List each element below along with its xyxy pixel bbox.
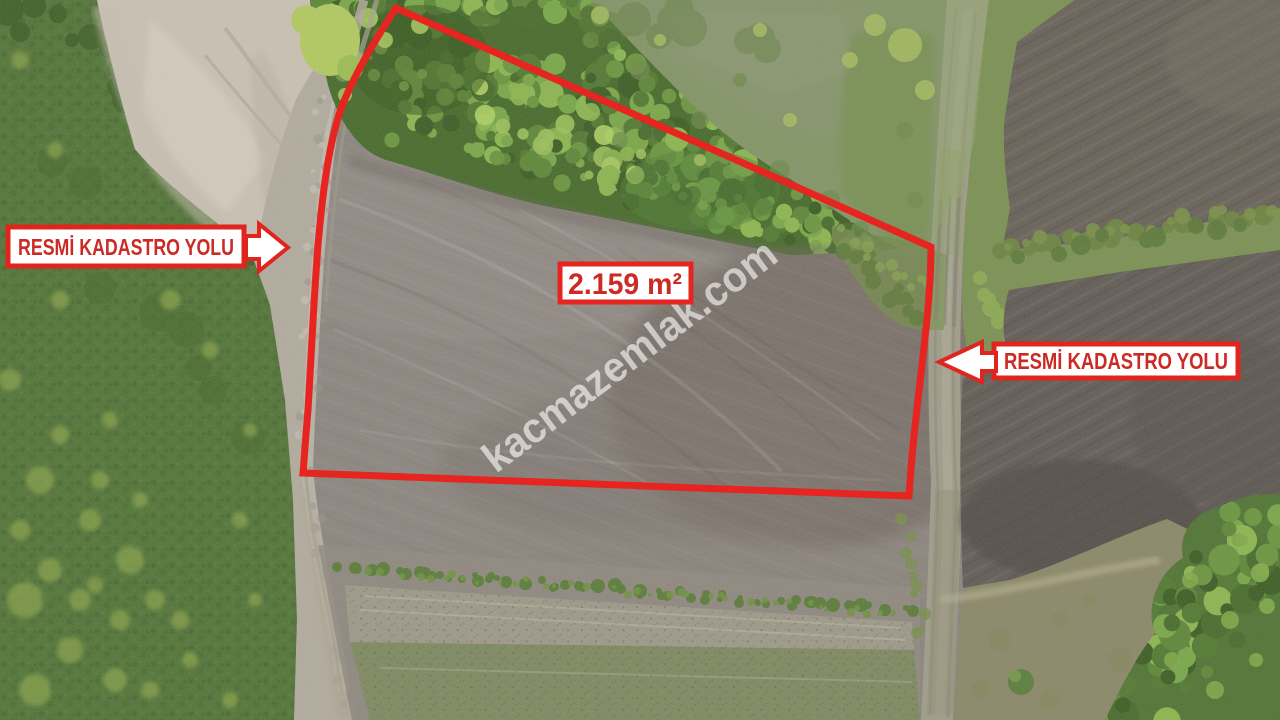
svg-text:RESMİ KADASTRO YOLU: RESMİ KADASTRO YOLU [18, 234, 234, 260]
svg-text:RESMİ KADASTRO YOLU: RESMİ KADASTRO YOLU [1004, 348, 1228, 374]
svg-text:2.159 m²: 2.159 m² [568, 268, 682, 301]
